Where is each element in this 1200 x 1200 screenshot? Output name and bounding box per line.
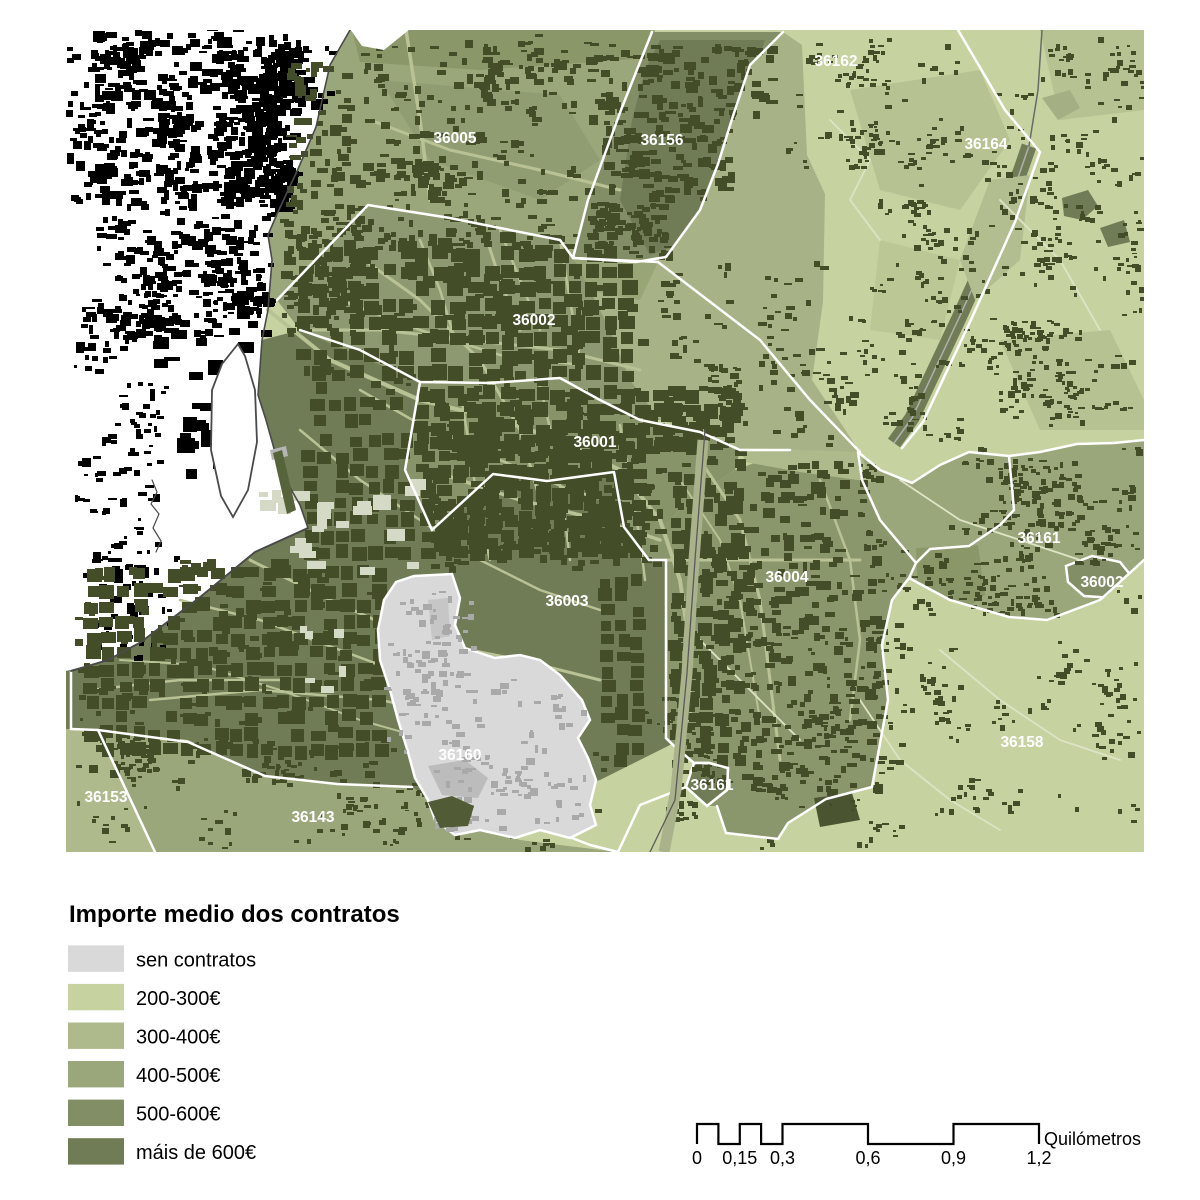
svg-text:0: 0 [692, 1148, 702, 1168]
svg-text:36156: 36156 [640, 132, 683, 149]
svg-text:36161: 36161 [1017, 530, 1060, 547]
svg-text:máis de 600€: máis de 600€ [136, 1142, 256, 1164]
svg-text:1,2: 1,2 [1026, 1148, 1051, 1168]
svg-text:36001: 36001 [573, 434, 616, 451]
svg-text:36004: 36004 [765, 569, 808, 586]
svg-text:36162: 36162 [814, 53, 857, 70]
svg-text:36143: 36143 [291, 809, 334, 826]
svg-text:36158: 36158 [1000, 734, 1043, 751]
svg-text:36002: 36002 [512, 312, 555, 329]
svg-text:0,15: 0,15 [722, 1148, 757, 1168]
svg-text:300-400€: 300-400€ [136, 1027, 221, 1049]
svg-text:0,6: 0,6 [855, 1148, 880, 1168]
svg-text:36003: 36003 [545, 593, 588, 610]
svg-text:Importe medio dos contratos: Importe medio dos contratos [69, 901, 400, 928]
svg-text:sen contratos: sen contratos [136, 949, 256, 971]
svg-text:36002: 36002 [1080, 574, 1123, 591]
svg-text:36005: 36005 [433, 130, 476, 147]
svg-text:0,3: 0,3 [770, 1148, 795, 1168]
svg-text:0,9: 0,9 [941, 1148, 966, 1168]
svg-text:36160: 36160 [438, 747, 481, 764]
svg-text:36161: 36161 [690, 777, 733, 794]
svg-text:36164: 36164 [964, 136, 1007, 153]
svg-text:400-500€: 400-500€ [136, 1065, 221, 1087]
svg-text:200-300€: 200-300€ [136, 988, 221, 1010]
svg-text:500-600€: 500-600€ [136, 1104, 221, 1126]
svg-text:Quilómetros: Quilómetros [1044, 1129, 1141, 1149]
svg-text:36153: 36153 [84, 789, 127, 806]
